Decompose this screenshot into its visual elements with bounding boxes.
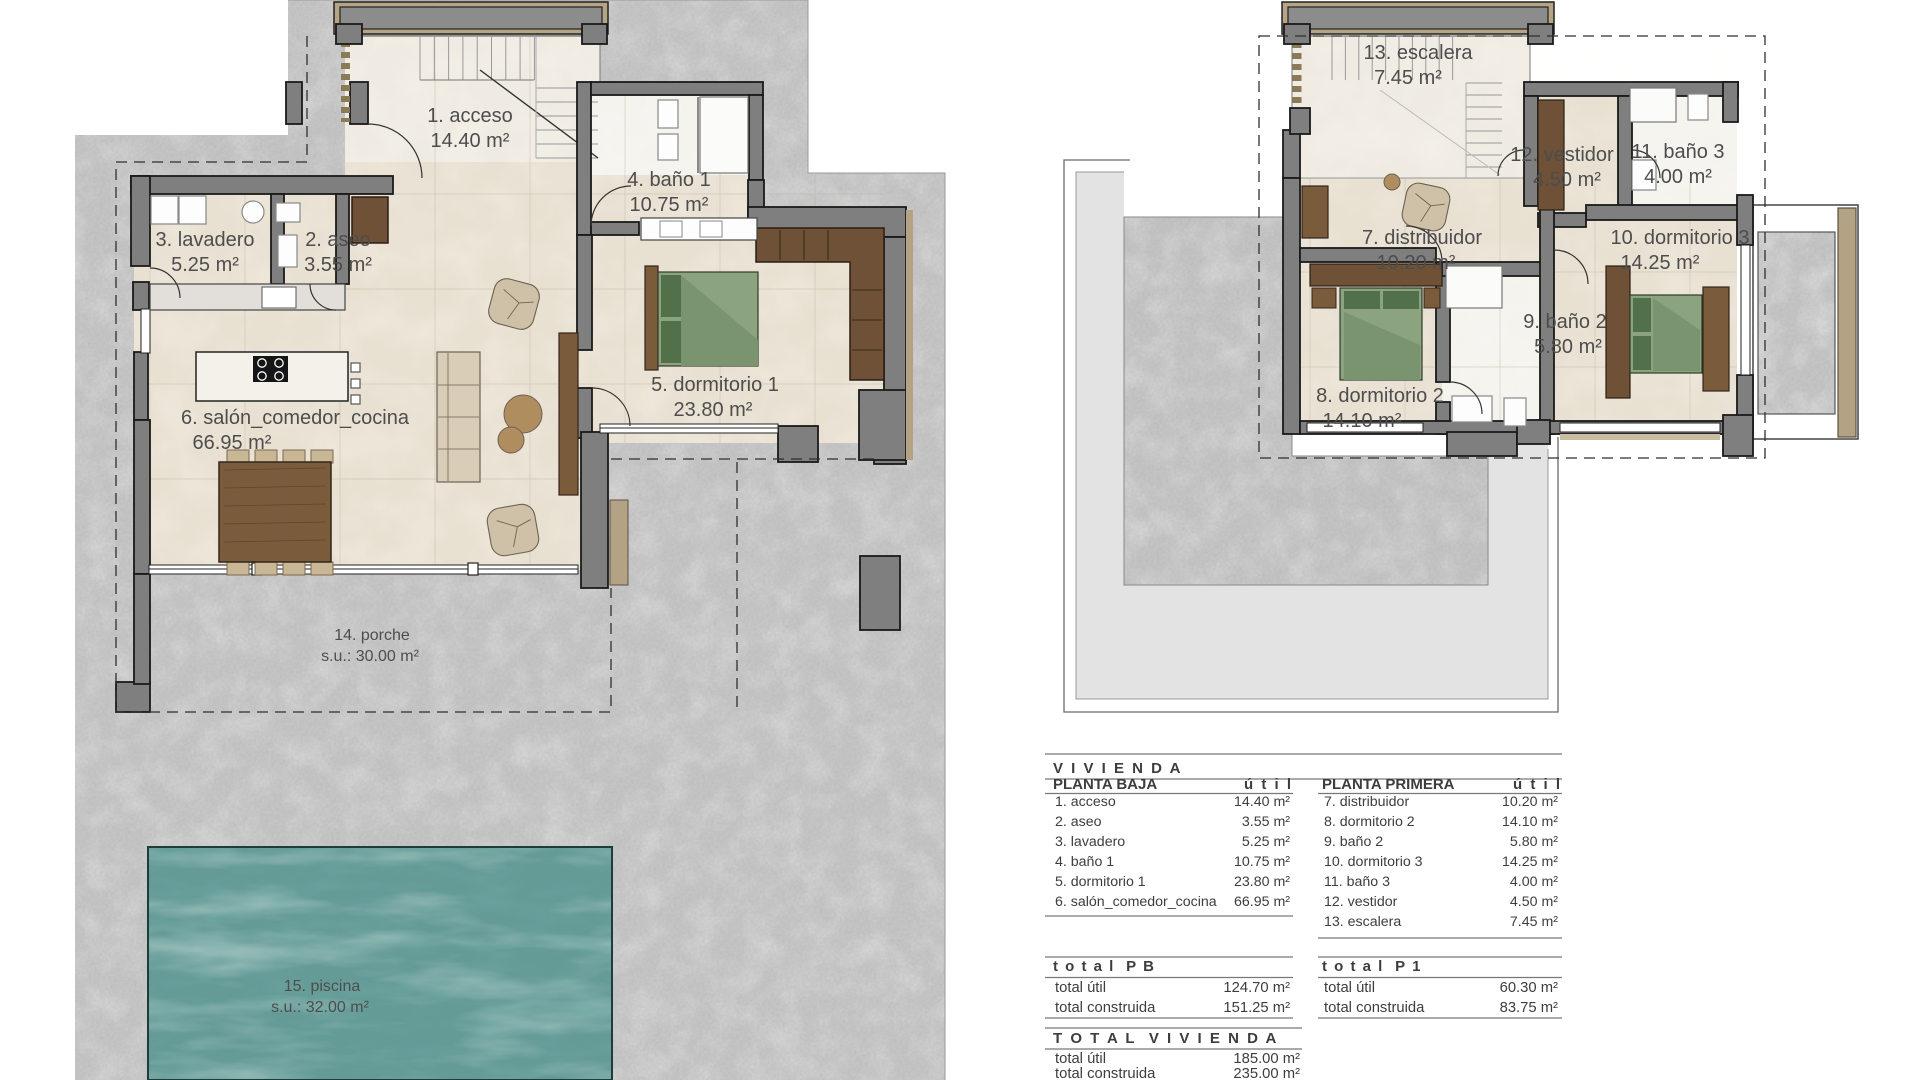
svg-text:13. escalera: 13. escalera xyxy=(1364,42,1474,64)
svg-text:12. vestidor: 12. vestidor xyxy=(1324,894,1398,910)
svg-text:T O T A L V I V I E N D A: T O T A L V I V I E N D A xyxy=(1053,1030,1278,1047)
svg-text:8. dormitorio 2: 8. dormitorio 2 xyxy=(1316,385,1444,407)
svg-text:11. baño 3: 11. baño 3 xyxy=(1631,141,1724,163)
svg-text:10. dormitorio 3: 10. dormitorio 3 xyxy=(1611,227,1750,249)
svg-text:t o t a l P 1: t o t a l P 1 xyxy=(1322,958,1422,975)
svg-text:t o t a l P B: t o t a l P B xyxy=(1053,958,1155,975)
svg-text:PLANTA BAJA: PLANTA BAJA xyxy=(1053,776,1157,793)
svg-text:5.80 m²: 5.80 m² xyxy=(1534,336,1602,358)
svg-text:14.10 m²: 14.10 m² xyxy=(1323,410,1402,432)
svg-text:total útil: total útil xyxy=(1055,980,1106,996)
svg-text:total útil: total útil xyxy=(1055,1051,1106,1067)
svg-text:5.80 m²: 5.80 m² xyxy=(1510,834,1558,850)
svg-text:5.25 m²: 5.25 m² xyxy=(1242,834,1290,850)
svg-text:total construida: total construida xyxy=(1055,1000,1156,1016)
svg-text:s.u.: 30.00 m²: s.u.: 30.00 m² xyxy=(321,648,419,665)
svg-text:10.75 m²: 10.75 m² xyxy=(1234,854,1290,870)
svg-text:1. acceso: 1. acceso xyxy=(1055,794,1116,810)
svg-text:66.95 m²: 66.95 m² xyxy=(193,432,272,454)
svg-text:8. dormitorio 2: 8. dormitorio 2 xyxy=(1324,814,1415,830)
svg-text:3. lavadero: 3. lavadero xyxy=(156,229,255,251)
svg-text:6. salón_comedor_cocina: 6. salón_comedor_cocina xyxy=(181,407,410,429)
svg-text:23.80 m²: 23.80 m² xyxy=(674,399,753,421)
svg-text:7.45 m²: 7.45 m² xyxy=(1510,914,1558,930)
svg-text:3.55 m²: 3.55 m² xyxy=(304,254,372,276)
svg-text:2. aseo: 2. aseo xyxy=(1055,814,1102,830)
svg-text:4.00 m²: 4.00 m² xyxy=(1510,874,1558,890)
svg-text:6. salón_comedor_cocina: 6. salón_comedor_cocina xyxy=(1055,894,1217,910)
svg-text:5. dormitorio 1: 5. dormitorio 1 xyxy=(1055,874,1146,890)
svg-text:14.40 m²: 14.40 m² xyxy=(1234,794,1290,810)
svg-text:s.u.: 32.00 m²: s.u.: 32.00 m² xyxy=(271,999,369,1016)
svg-text:14.25 m²: 14.25 m² xyxy=(1621,252,1700,274)
svg-text:10.75 m²: 10.75 m² xyxy=(630,194,709,216)
svg-text:9. baño 2: 9. baño 2 xyxy=(1523,311,1606,333)
svg-text:ú t i l: ú t i l xyxy=(1513,776,1562,793)
svg-text:total útil: total útil xyxy=(1324,980,1375,996)
svg-text:14.10 m²: 14.10 m² xyxy=(1502,814,1558,830)
svg-text:124.70 m²: 124.70 m² xyxy=(1223,980,1290,996)
svg-text:ú t i l: ú t i l xyxy=(1244,776,1293,793)
svg-text:4.50 m²: 4.50 m² xyxy=(1510,894,1558,910)
svg-text:15. piscina: 15. piscina xyxy=(284,978,361,995)
svg-text:3. lavadero: 3. lavadero xyxy=(1055,834,1125,850)
svg-text:185.00 m²: 185.00 m² xyxy=(1233,1051,1300,1067)
svg-text:2. aseo: 2. aseo xyxy=(305,229,371,251)
svg-text:13. escalera: 13. escalera xyxy=(1324,914,1401,930)
svg-text:10.20 m²: 10.20 m² xyxy=(1377,252,1456,274)
svg-text:60.30 m²: 60.30 m² xyxy=(1500,980,1558,996)
svg-text:total construida: total construida xyxy=(1055,1066,1156,1080)
svg-text:14.40 m²: 14.40 m² xyxy=(431,130,510,152)
svg-text:4. baño 1: 4. baño 1 xyxy=(1055,854,1114,870)
svg-text:83.75 m²: 83.75 m² xyxy=(1500,1000,1558,1016)
svg-text:4.50 m²: 4.50 m² xyxy=(1533,169,1601,191)
svg-text:5.25 m²: 5.25 m² xyxy=(171,254,239,276)
svg-text:10. dormitorio 3: 10. dormitorio 3 xyxy=(1324,854,1423,870)
svg-text:14. porche: 14. porche xyxy=(334,627,410,644)
svg-text:PLANTA PRIMERA: PLANTA PRIMERA xyxy=(1322,776,1455,793)
svg-text:66.95 m²: 66.95 m² xyxy=(1234,894,1290,910)
svg-text:23.80 m²: 23.80 m² xyxy=(1234,874,1290,890)
svg-text:235.00 m²: 235.00 m² xyxy=(1233,1066,1300,1080)
svg-text:3.55 m²: 3.55 m² xyxy=(1242,814,1290,830)
svg-text:4.00 m²: 4.00 m² xyxy=(1644,166,1712,188)
svg-text:10.20 m²: 10.20 m² xyxy=(1502,794,1558,810)
svg-text:7.45 m²: 7.45 m² xyxy=(1374,67,1442,89)
svg-text:9. baño 2: 9. baño 2 xyxy=(1324,834,1383,850)
svg-text:V I V I E N D A: V I V I E N D A xyxy=(1053,760,1182,777)
svg-text:11. baño 3: 11. baño 3 xyxy=(1324,874,1390,890)
svg-text:151.25 m²: 151.25 m² xyxy=(1223,1000,1290,1016)
svg-text:1. acceso: 1. acceso xyxy=(427,105,513,127)
svg-text:7. distribuidor: 7. distribuidor xyxy=(1362,227,1482,249)
svg-text:12. vestidor: 12. vestidor xyxy=(1510,144,1614,166)
svg-text:14.25 m²: 14.25 m² xyxy=(1502,854,1558,870)
svg-text:5. dormitorio 1: 5. dormitorio 1 xyxy=(651,374,779,396)
svg-text:total construida: total construida xyxy=(1324,1000,1425,1016)
svg-text:4. baño 1: 4. baño 1 xyxy=(627,169,710,191)
svg-text:7. distribuidor: 7. distribuidor xyxy=(1324,794,1409,810)
